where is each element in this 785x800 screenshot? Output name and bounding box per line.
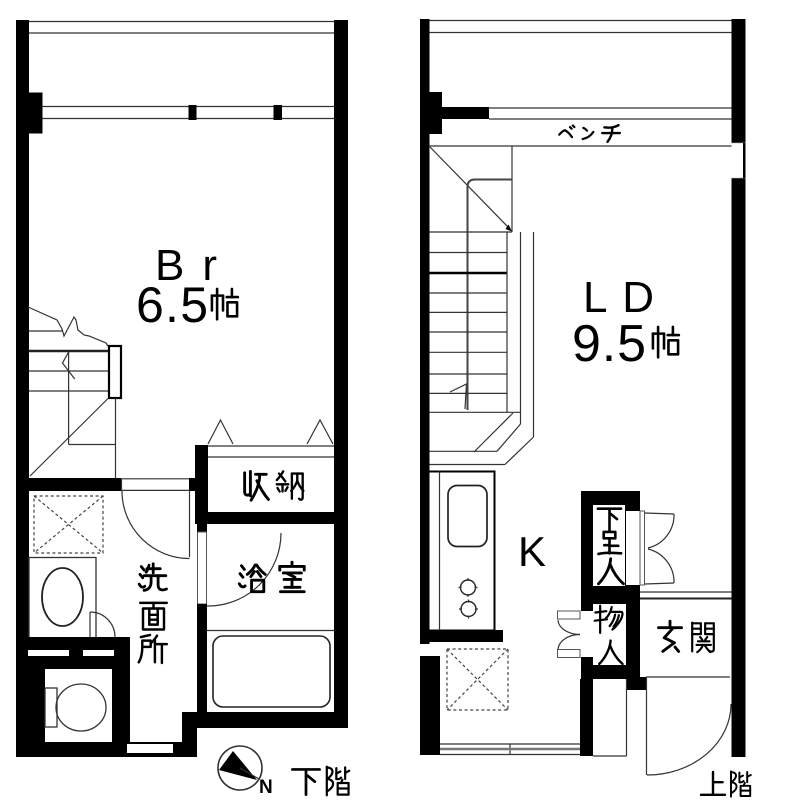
svg-text:9.5: 9.5: [572, 315, 646, 373]
svg-text:6.5: 6.5: [136, 277, 208, 333]
svg-text:K: K: [518, 528, 546, 575]
svg-text:N: N: [259, 777, 273, 798]
